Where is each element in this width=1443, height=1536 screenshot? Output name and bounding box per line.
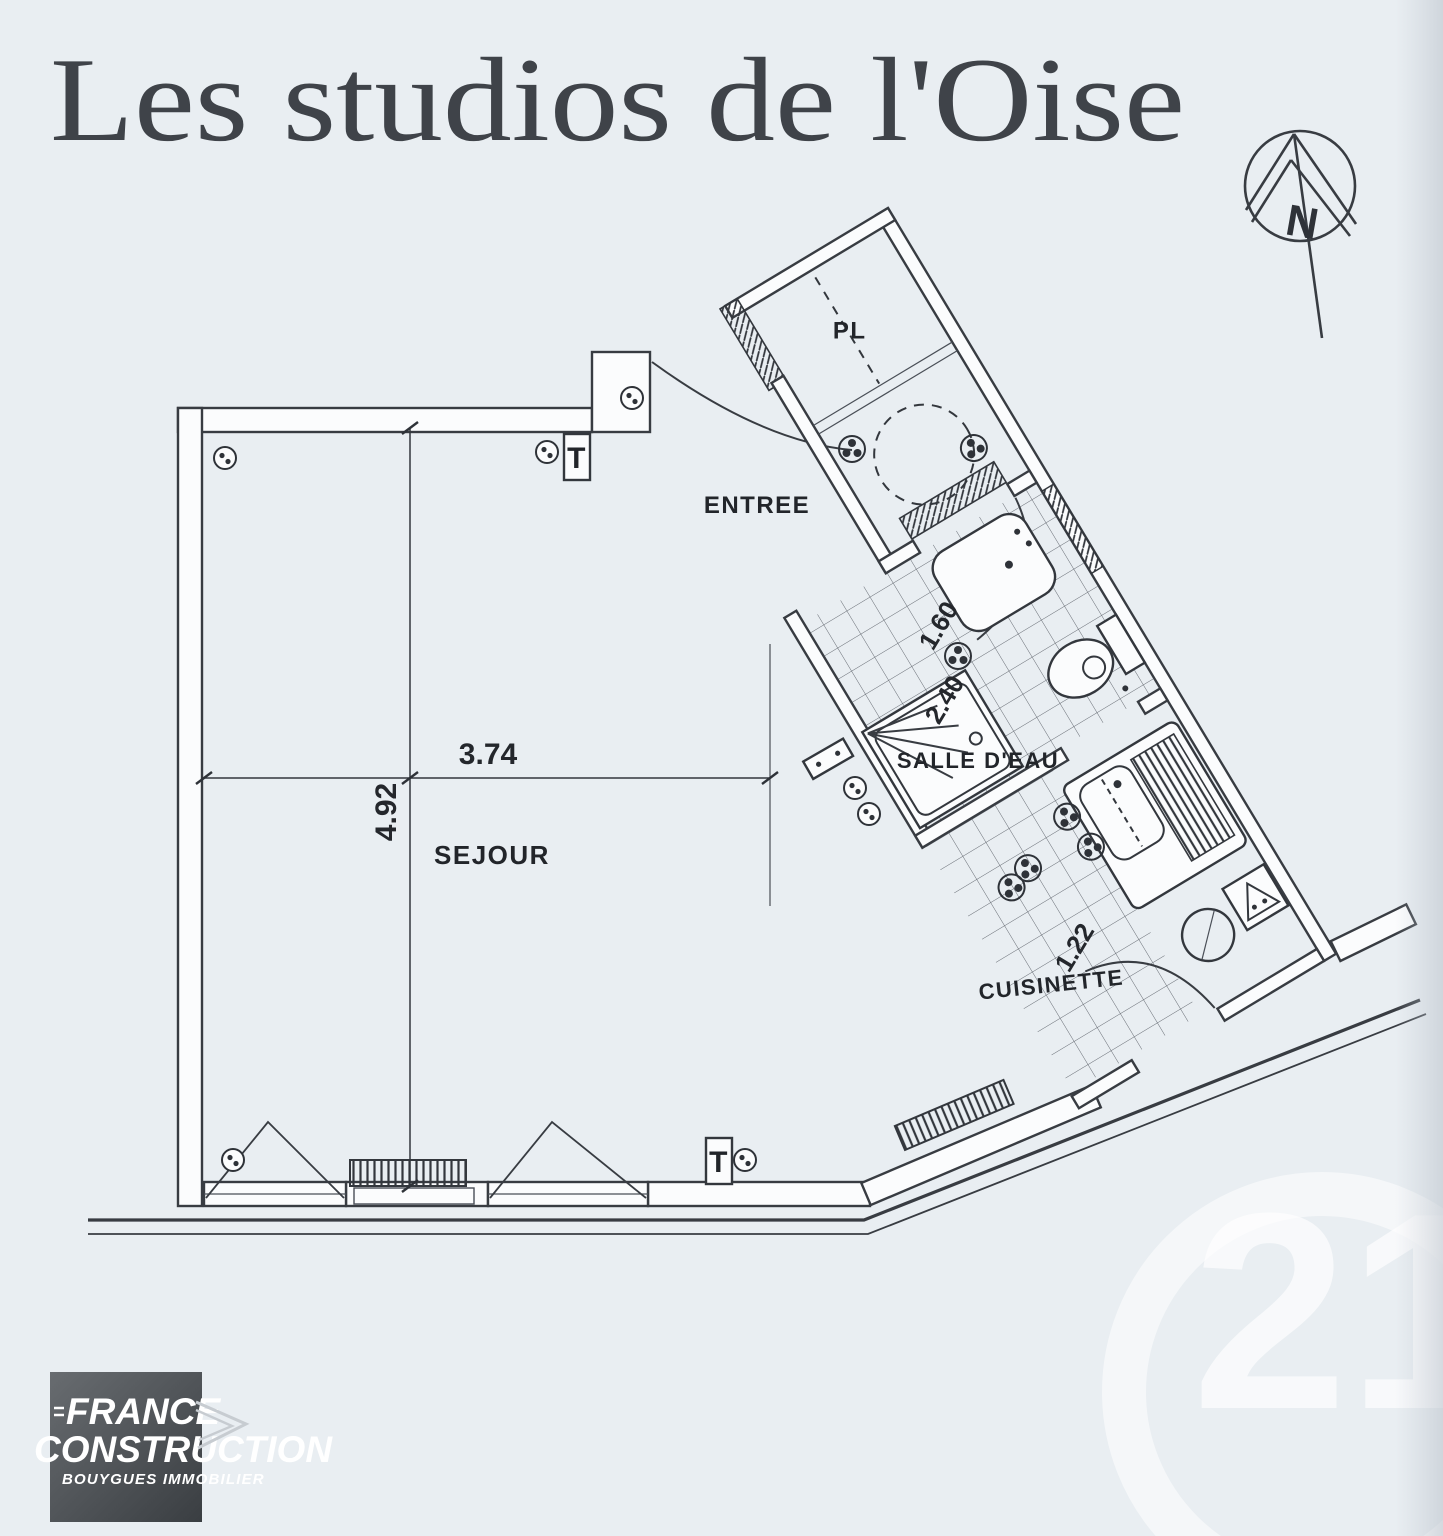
socket-icon-door [621,387,643,409]
socket-icon-bath1 [844,777,866,799]
socket-icon-topleft [214,447,236,469]
socket-icon-top [536,441,558,463]
wall-left [178,408,202,1206]
socket-icon-bottomleft [222,1149,244,1171]
radiator-sejour [350,1160,466,1186]
dim-sejour-depth: 4.92 [370,783,403,841]
thermostat-bottom: T [706,1138,732,1184]
socket-icon-bath2 [858,803,880,825]
thermostat-letter: T [709,1146,729,1179]
page-edge-shade [1395,0,1443,1536]
window-subsill [354,1188,474,1204]
thermostat-top: T [564,434,590,480]
logo-text-bouygues: BOUYGUES IMMOBILIER [62,1471,265,1488]
room-label-sejour: SEJOUR [434,840,550,870]
room-label-salle-deau: SALLE D'EAU [897,748,1059,773]
floor-plan-canvas: 21 Les studios de l'Oise N [0,0,1443,1536]
dim-sejour-width: 3.74 [459,738,518,771]
socket-icon-bottom [734,1149,756,1171]
wall-bottom-right [648,1182,870,1206]
scanned-floorplan-page: 21 Les studios de l'Oise N [0,0,1443,1536]
page-title: Les studios de l'Oise [50,33,1185,166]
room-label-entree: ENTREE [704,492,810,519]
logo-text-construction: CONSTRUCTION [34,1429,333,1470]
thermostat-letter: T [567,442,587,475]
room-label-placard: PL [833,317,867,344]
wall-top [178,408,592,432]
